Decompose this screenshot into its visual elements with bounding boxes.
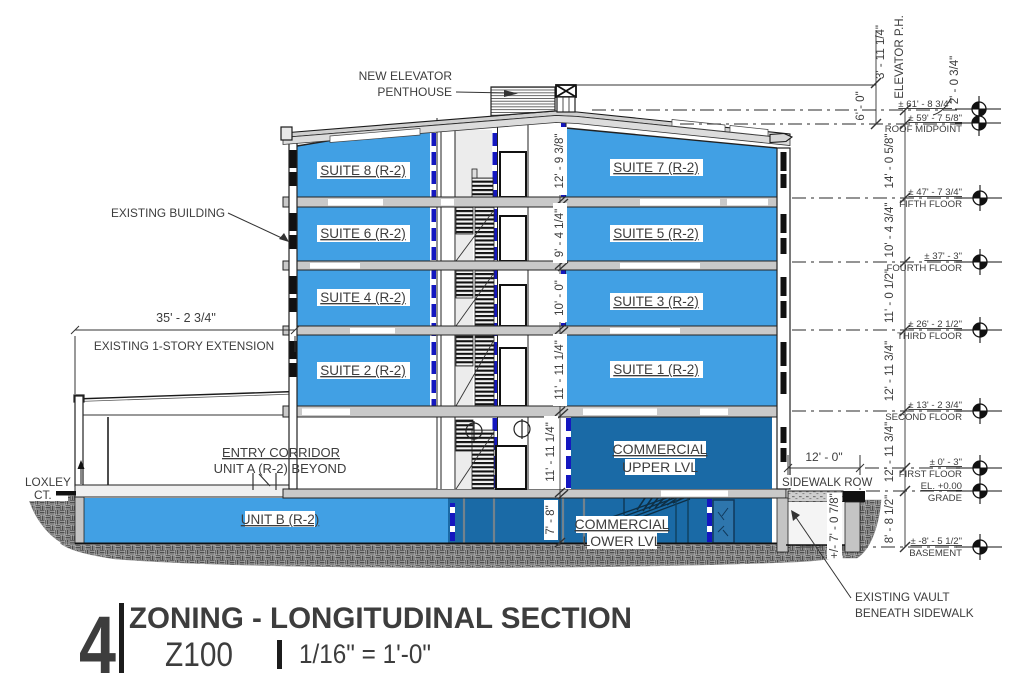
svg-text:FIFTH FLOOR: FIFTH FLOOR	[899, 199, 962, 210]
svg-text:BENEATH SIDEWALK: BENEATH SIDEWALK	[855, 606, 974, 620]
svg-text:± 26' - 2 1/2": ± 26' - 2 1/2"	[908, 319, 962, 330]
svg-text:4: 4	[79, 600, 116, 691]
svg-text:EL. +0.00: EL. +0.00	[921, 481, 962, 492]
svg-text:SUITE 3 (R-2): SUITE 3 (R-2)	[613, 294, 699, 309]
svg-text:11' - 0 1/2": 11' - 0 1/2"	[884, 269, 896, 323]
svg-text:+/- 7' - 0 7/8": +/- 7' - 0 7/8"	[829, 493, 841, 558]
svg-text:SUITE 6 (R-2): SUITE 6 (R-2)	[320, 226, 406, 241]
svg-text:SUITE 2 (R-2): SUITE 2 (R-2)	[320, 363, 406, 378]
svg-text:11' - 11 1/4": 11' - 11 1/4"	[554, 340, 566, 400]
svg-text:14' - 0 5/8": 14' - 0 5/8"	[884, 134, 896, 189]
svg-text:10' - 0": 10' - 0"	[554, 280, 566, 316]
svg-text:UNIT B (R-2): UNIT B (R-2)	[241, 512, 320, 527]
svg-text:10' - 4 3/4": 10' - 4 3/4"	[884, 203, 896, 258]
svg-text:LOWER LVL: LOWER LVL	[582, 533, 661, 549]
svg-text:PENTHOUSE: PENTHOUSE	[377, 85, 452, 99]
svg-text:8' - 8 1/2": 8' - 8 1/2"	[884, 495, 896, 543]
svg-text:EXISTING 1-STORY EXTENSION: EXISTING 1-STORY EXTENSION	[94, 339, 274, 353]
svg-text:1/16" = 1'-0": 1/16" = 1'-0"	[299, 639, 431, 669]
svg-text:12' - 11 3/4": 12' - 11 3/4"	[884, 422, 896, 482]
svg-text:7' - 8": 7' - 8"	[545, 505, 557, 534]
svg-text:CT.: CT.	[34, 488, 52, 502]
svg-text:BASEMENT: BASEMENT	[909, 548, 962, 559]
svg-text:ELEVATOR P.H.: ELEVATOR P.H.	[894, 15, 906, 99]
svg-text:COMMERCIAL: COMMERCIAL	[575, 516, 670, 532]
svg-text:LOXLEY: LOXLEY	[25, 475, 71, 489]
svg-text:± 0' - 3": ± 0' - 3"	[930, 457, 962, 468]
svg-text:EXISTING VAULT: EXISTING VAULT	[855, 590, 950, 604]
svg-text:± 61' - 8 3/4": ± 61' - 8 3/4"	[898, 99, 952, 110]
svg-text:FOURTH FLOOR: FOURTH FLOOR	[886, 263, 962, 274]
svg-text:EXISTING BUILDING: EXISTING BUILDING	[111, 206, 225, 220]
svg-text:SUITE 5 (R-2): SUITE 5 (R-2)	[613, 226, 699, 241]
svg-text:12' - 11 3/4": 12' - 11 3/4"	[884, 341, 896, 401]
svg-text:FIRST FLOOR: FIRST FLOOR	[899, 469, 962, 480]
svg-text:35' - 2 3/4": 35' - 2 3/4"	[156, 311, 216, 325]
svg-text:6' - 0": 6' - 0"	[855, 91, 867, 120]
svg-text:± 59' - 7 5/8": ± 59' - 7 5/8"	[908, 113, 962, 124]
svg-text:± 13' - 2 3/4": ± 13' - 2 3/4"	[908, 400, 962, 411]
svg-text:± 37' - 3": ± 37' - 3"	[924, 251, 962, 262]
svg-text:12' - 0": 12' - 0"	[805, 450, 842, 464]
svg-text:2' - 0 3/4": 2' - 0 3/4"	[949, 56, 961, 104]
svg-text:3' - 11 1/4": 3' - 11 1/4"	[875, 25, 887, 79]
svg-text:NEW ELEVATOR: NEW ELEVATOR	[359, 69, 453, 83]
svg-text:GRADE: GRADE	[928, 493, 962, 504]
svg-text:ZONING - LONGITUDINAL SECTION: ZONING - LONGITUDINAL SECTION	[129, 602, 632, 635]
svg-text:SUITE 7 (R-2): SUITE 7 (R-2)	[613, 160, 699, 175]
svg-text:9' - 4 1/4": 9' - 4 1/4"	[554, 209, 566, 257]
svg-text:12' - 9 3/8": 12' - 9 3/8"	[554, 134, 566, 189]
svg-text:SIDEWALK ROW: SIDEWALK ROW	[782, 477, 872, 489]
svg-text:SUITE 4 (R-2): SUITE 4 (R-2)	[320, 290, 406, 305]
svg-text:Z100: Z100	[165, 636, 233, 674]
svg-text:SUITE 1 (R-2): SUITE 1 (R-2)	[613, 362, 699, 377]
svg-text:SUITE 8 (R-2): SUITE 8 (R-2)	[320, 163, 406, 178]
svg-text:UPPER LVL: UPPER LVL	[622, 459, 698, 475]
svg-text:THIRD FLOOR: THIRD FLOOR	[897, 331, 962, 342]
svg-text:± -8' - 5 1/2": ± -8' - 5 1/2"	[910, 536, 962, 547]
svg-text:ENTRY CORRIDOR: ENTRY CORRIDOR	[222, 445, 340, 460]
svg-text:± 47' - 7 3/4": ± 47' - 7 3/4"	[908, 187, 962, 198]
svg-text:UNIT A (R-2) BEYOND: UNIT A (R-2) BEYOND	[214, 461, 347, 476]
svg-text:11' - 11 1/4": 11' - 11 1/4"	[545, 422, 557, 482]
svg-text:ROOF MIDPOINT: ROOF MIDPOINT	[885, 124, 962, 135]
svg-text:SECOND FLOOR: SECOND FLOOR	[885, 412, 962, 423]
svg-text:COMMERCIAL: COMMERCIAL	[613, 441, 708, 457]
